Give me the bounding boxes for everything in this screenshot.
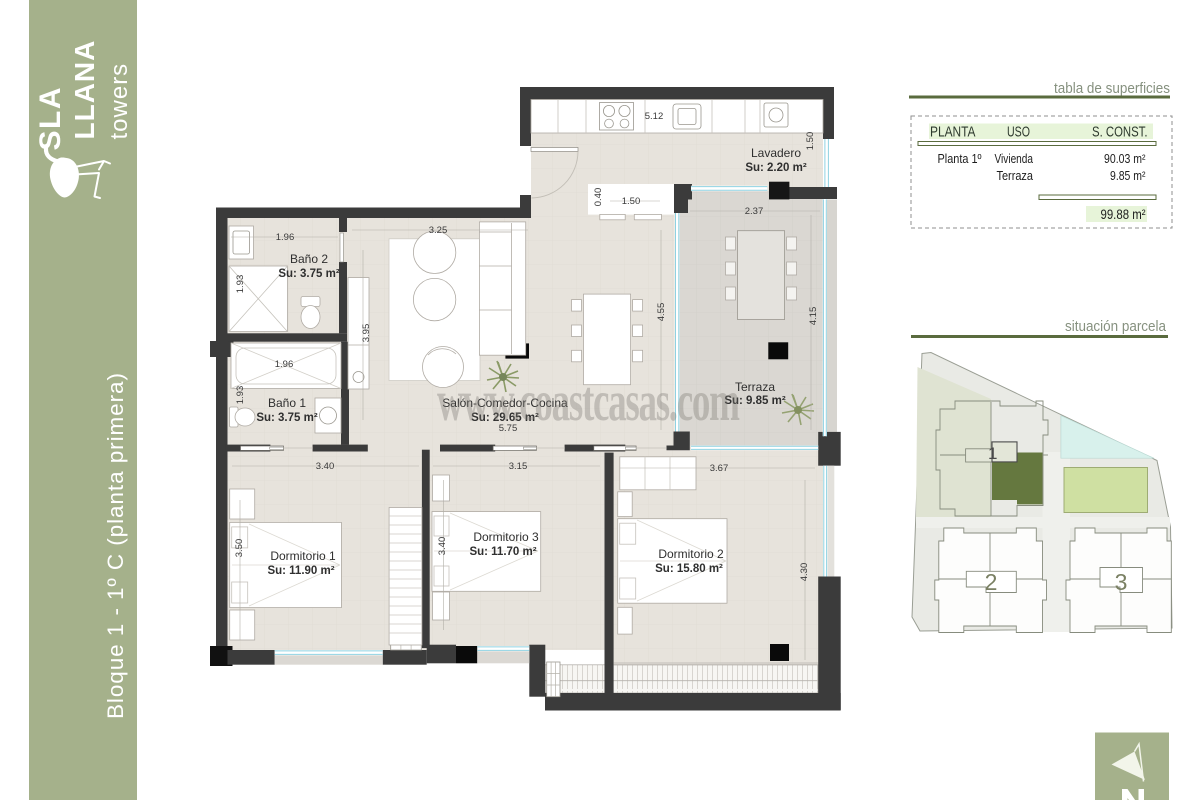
svg-text:PLANTA: PLANTA <box>930 124 976 141</box>
svg-text:www.coastcasas.com: www.coastcasas.com <box>437 370 740 433</box>
svg-text:90.03 m²: 90.03 m² <box>1104 151 1146 166</box>
svg-text:Su: 3.75 m²: Su: 3.75 m² <box>278 268 340 280</box>
svg-text:Lavadero: Lavadero <box>751 146 801 160</box>
svg-text:4.15: 4.15 <box>808 307 819 326</box>
svg-text:3.15: 3.15 <box>509 461 528 472</box>
svg-text:situación parcela: situación parcela <box>1065 318 1167 335</box>
svg-text:Su: 11.90 m²: Su: 11.90 m² <box>267 565 334 577</box>
svg-text:Terraza: Terraza <box>997 168 1034 183</box>
svg-text:3.25: 3.25 <box>429 225 448 236</box>
svg-text:9.85 m²: 9.85 m² <box>1110 168 1146 183</box>
svg-text:3.95: 3.95 <box>361 324 372 343</box>
svg-text:3.67: 3.67 <box>710 463 729 474</box>
svg-text:Planta 1º: Planta 1º <box>938 151 982 166</box>
svg-text:Baño 1: Baño 1 <box>268 396 306 410</box>
svg-text:tabla de superficies: tabla de superficies <box>1054 80 1170 97</box>
svg-text:1.96: 1.96 <box>275 359 294 370</box>
svg-text:1.50: 1.50 <box>805 132 816 151</box>
svg-text:Dormitorio 2: Dormitorio 2 <box>658 547 724 561</box>
svg-text:Su: 15.80 m²: Su: 15.80 m² <box>655 563 723 575</box>
svg-text:3.40: 3.40 <box>316 461 335 472</box>
svg-text:Vivienda: Vivienda <box>995 151 1034 166</box>
svg-text:3: 3 <box>1115 569 1128 595</box>
svg-text:Baño 2: Baño 2 <box>290 252 328 266</box>
svg-text:S. CONST.: S. CONST. <box>1092 124 1148 141</box>
svg-text:Terraza: Terraza <box>735 380 775 394</box>
svg-text:1.50: 1.50 <box>622 196 641 207</box>
svg-text:99.88 m²: 99.88 m² <box>1101 206 1146 222</box>
svg-text:SLA: SLA <box>34 86 67 151</box>
svg-text:1: 1 <box>988 444 997 463</box>
svg-text:Su: 2.20 m²: Su: 2.20 m² <box>745 162 807 174</box>
svg-text:Su: 3.75 m²: Su: 3.75 m² <box>256 412 318 424</box>
svg-text:2: 2 <box>985 569 998 595</box>
svg-text:LLANA: LLANA <box>69 40 100 140</box>
svg-text:Su: 11.70 m²: Su: 11.70 m² <box>469 546 536 558</box>
svg-text:0.40: 0.40 <box>593 188 604 207</box>
svg-text:USO: USO <box>1007 124 1030 141</box>
svg-text:4.30: 4.30 <box>799 563 810 582</box>
svg-text:Dormitorio 3: Dormitorio 3 <box>473 530 539 544</box>
svg-text:towers: towers <box>106 63 133 140</box>
svg-text:4.55: 4.55 <box>656 303 667 322</box>
svg-text:3.40: 3.40 <box>437 537 448 556</box>
svg-text:1.93: 1.93 <box>235 386 246 405</box>
svg-text:1.96: 1.96 <box>276 232 295 243</box>
svg-text:Bloque 1 - 1º C (planta primer: Bloque 1 - 1º C (planta primera) <box>103 373 128 719</box>
svg-text:3.50: 3.50 <box>234 539 245 558</box>
svg-text:Dormitorio 1: Dormitorio 1 <box>270 549 336 563</box>
svg-text:1.93: 1.93 <box>235 275 246 294</box>
svg-text:2.37: 2.37 <box>745 206 764 217</box>
svg-text:5.12: 5.12 <box>645 111 664 122</box>
